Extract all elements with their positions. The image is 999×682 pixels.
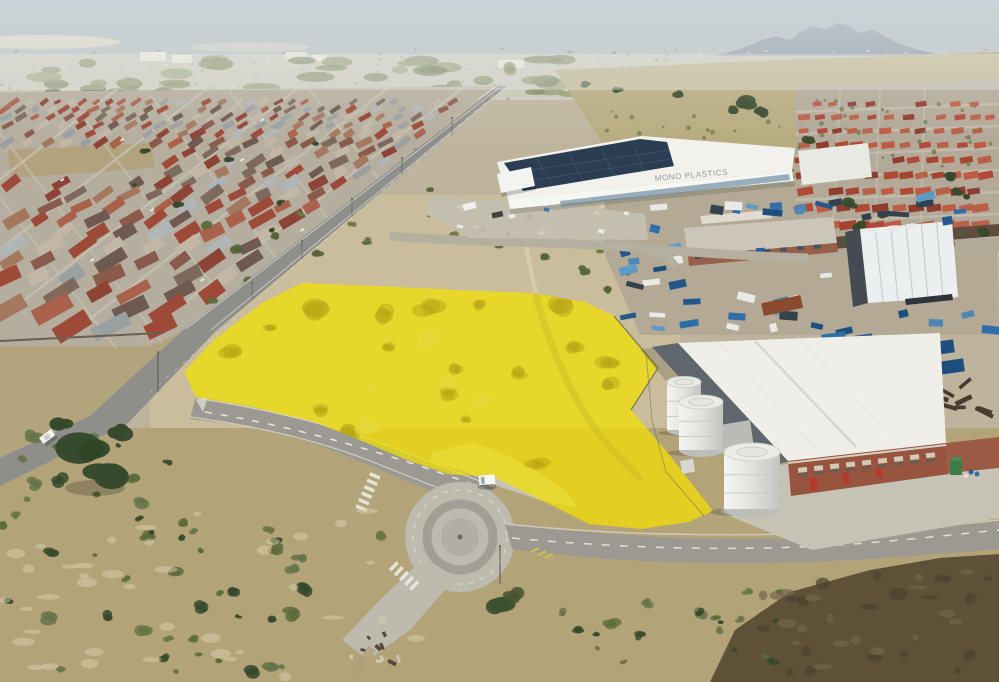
vegetation-blob <box>233 244 242 252</box>
veld-bush <box>966 162 970 166</box>
van-windshield <box>481 477 485 484</box>
vegetation-blob <box>116 445 120 448</box>
sand-patch <box>378 616 386 624</box>
plant-equipment <box>628 257 640 265</box>
tank-top-ring <box>689 398 713 406</box>
factory-window <box>878 458 887 464</box>
vegetation-blob <box>302 299 329 317</box>
sand-patch <box>279 672 291 681</box>
burnt-patch <box>851 636 860 645</box>
vegetation-blob <box>507 594 519 603</box>
sand-patch <box>201 633 221 643</box>
vegetation-blob <box>46 550 58 556</box>
vegetation-blob <box>696 611 702 616</box>
burnt-patch <box>960 569 974 574</box>
vegetation-blob <box>269 229 274 232</box>
yard-junk-item <box>508 214 515 219</box>
vegetation-blob <box>351 222 357 227</box>
burnt-patch <box>805 666 816 676</box>
vegetation-blob <box>977 227 988 233</box>
depth-haze <box>0 0 999 140</box>
vegetation-blob <box>550 300 568 313</box>
sand-patch <box>79 573 89 579</box>
yard-junk-item <box>624 211 629 215</box>
sand-patch <box>23 564 35 573</box>
vegetation-blob <box>209 298 218 303</box>
veld-bush <box>941 165 944 168</box>
vegetation-blob <box>477 394 493 403</box>
vegetation-blob <box>777 589 782 592</box>
vegetation-blob <box>601 378 612 390</box>
burnt-patch <box>805 594 821 601</box>
vegetation-blob <box>132 183 137 187</box>
burnt-patch <box>949 619 962 625</box>
vegetation-blob <box>958 231 965 237</box>
vegetation-blob <box>178 519 188 526</box>
plant-equipment <box>770 202 782 210</box>
vegetation-blob <box>31 479 39 486</box>
vegetation-blob <box>97 463 126 486</box>
burnt-patch <box>935 575 951 583</box>
tank-top-ring <box>675 379 694 385</box>
burnt-patch <box>832 640 850 647</box>
sand-patch <box>77 578 97 587</box>
plant-equipment <box>724 201 742 210</box>
vegetation-blob <box>440 391 454 402</box>
vegetation-blob <box>270 234 276 239</box>
vegetation-blob <box>150 531 154 535</box>
vegetation-blob <box>375 308 390 325</box>
burnt-patch <box>757 625 769 632</box>
vegetation-blob <box>460 417 468 422</box>
sand-patch <box>235 650 244 654</box>
burnt-patch <box>920 595 938 599</box>
vegetation-blob <box>603 287 609 292</box>
sand-patch <box>20 607 33 612</box>
sand-patch <box>154 566 178 572</box>
vegetation-blob <box>266 325 276 331</box>
vegetation-blob <box>227 157 235 161</box>
sand-patch <box>35 544 46 549</box>
vegetation-blob <box>176 202 184 207</box>
burnt-patch <box>899 649 908 658</box>
burnt-patch <box>861 604 878 610</box>
vegetation-blob <box>163 653 169 660</box>
debris-log <box>951 405 966 409</box>
vegetation-blob <box>229 347 242 356</box>
vegetation-blob <box>277 200 282 204</box>
workshop-window <box>797 246 804 250</box>
vegetation-blob <box>191 635 199 640</box>
vegetation-blob <box>14 511 21 517</box>
vegetation-blob <box>412 304 434 317</box>
sand-patch <box>193 512 202 517</box>
vegetation-blob <box>594 632 600 636</box>
vegetation-blob <box>268 616 276 622</box>
vegetation-blob <box>299 554 307 563</box>
sand-patch <box>7 549 25 559</box>
vegetation-blob <box>620 661 625 665</box>
workshop-window <box>780 247 787 251</box>
vegetation-blob <box>720 621 723 624</box>
sand-patch <box>257 545 272 554</box>
vegetation-blob <box>52 419 64 429</box>
veld-bush <box>969 141 972 144</box>
vegetation-blob <box>473 299 484 308</box>
sand-patch <box>357 508 379 513</box>
vegetation-blob <box>285 611 298 622</box>
plant-equipment <box>728 312 745 320</box>
pole-head <box>499 545 501 547</box>
vegetation-blob <box>376 531 385 538</box>
burnt-patch <box>816 578 830 590</box>
vegetation-blob <box>173 670 178 674</box>
vegetation-blob <box>167 635 172 639</box>
burnt-patch <box>873 571 881 581</box>
vegetation-blob <box>952 187 959 195</box>
sand-patch <box>293 532 308 540</box>
vegetation-blob <box>963 194 970 198</box>
sand-patch <box>24 630 41 634</box>
factory-door <box>875 468 882 479</box>
burnt-patch <box>915 574 923 581</box>
sand-patch <box>12 638 35 646</box>
vegetation-blob <box>382 344 393 350</box>
vegetation-blob <box>263 526 270 532</box>
burnt-patch <box>786 669 793 677</box>
vegetation-blob <box>23 498 29 502</box>
vegetation-blob <box>140 148 148 153</box>
rubble-debris <box>350 655 353 660</box>
factory-window <box>862 460 871 466</box>
rubble-debris <box>376 660 383 663</box>
sand-patch <box>266 538 280 545</box>
factory-window <box>926 452 935 458</box>
white-truck <box>906 223 915 229</box>
sand-patch <box>37 594 60 599</box>
vegetation-blob <box>580 269 587 276</box>
vegetation-blob <box>201 222 212 229</box>
vegetation-blob <box>313 404 329 413</box>
white-truck <box>868 228 877 233</box>
factory-window <box>814 465 823 471</box>
sand-patch <box>160 623 175 631</box>
vegetation-blob <box>136 516 142 520</box>
vegetation-blob <box>178 535 185 539</box>
burnt-patch <box>759 591 768 601</box>
vegetation-blob <box>231 588 240 597</box>
factory-window <box>894 456 903 462</box>
tank-top-ring <box>737 447 768 457</box>
vegetation-blob <box>235 615 240 618</box>
burnt-patch <box>963 650 976 661</box>
plant-equipment <box>942 216 953 226</box>
vegetation-blob <box>133 497 145 504</box>
atmospheric-haze <box>0 0 999 140</box>
pole-head <box>351 198 353 200</box>
vegetation-blob <box>299 212 304 217</box>
burnt-patch <box>797 625 808 632</box>
vegetation-blob <box>297 583 311 595</box>
vegetation-blob <box>363 241 372 245</box>
factory-window <box>830 463 839 469</box>
burnt-patch <box>954 667 961 674</box>
vegetation-blob <box>216 591 222 596</box>
burnt-patch <box>867 654 883 661</box>
vegetation-blob <box>78 449 97 461</box>
plant-equipment <box>795 205 804 215</box>
burnt-patch <box>984 575 992 581</box>
aerial-photo-stage: MONO PLASTICS <box>0 0 999 682</box>
white-drum <box>964 474 968 478</box>
pole-head <box>251 282 253 284</box>
burnt-patch <box>870 647 884 655</box>
factory-window <box>798 467 807 473</box>
vegetation-blob <box>51 476 63 484</box>
vegetation-blob <box>746 589 753 594</box>
sand-patch <box>322 616 344 620</box>
burnt-patch <box>889 588 907 600</box>
vegetation-blob <box>41 611 56 620</box>
vegetation-blob <box>710 616 719 621</box>
vegetation-blob <box>946 173 955 181</box>
sand-patch <box>124 584 136 590</box>
vegetation-blob <box>453 365 464 374</box>
vegetation-blob <box>104 614 113 621</box>
blue-drum <box>975 472 980 477</box>
veld-bush <box>797 146 800 149</box>
vegetation-blob <box>541 253 549 257</box>
burnt-patch <box>792 640 800 646</box>
vegetation-blob <box>574 626 582 632</box>
sand-patch <box>335 519 347 527</box>
burnt-patch <box>965 593 976 605</box>
vegetation-blob <box>198 653 202 656</box>
vegetation-blob <box>313 141 318 144</box>
yard-junk-item <box>458 205 464 208</box>
sand-patch <box>135 525 157 530</box>
burnt-patch <box>912 635 919 641</box>
yard-junk-item <box>473 226 478 229</box>
burnt-patch <box>802 646 810 656</box>
white-truck <box>888 225 898 231</box>
vegetation-blob <box>25 433 40 442</box>
vegetation-blob <box>167 461 172 465</box>
sand-patch <box>211 649 231 658</box>
vegetation-blob <box>199 602 208 613</box>
vegetation-blob <box>731 648 736 652</box>
sand-patch <box>42 663 59 669</box>
vegetation-blob <box>355 421 372 435</box>
vegetation-blob <box>600 357 619 369</box>
vegetation-blob <box>368 386 378 393</box>
vegetation-blob <box>426 188 433 192</box>
plant-equipment <box>877 211 891 217</box>
vegetation-blob <box>735 619 743 623</box>
sand-patch <box>289 584 299 590</box>
vegetation-blob <box>139 628 150 635</box>
sand-patch <box>85 648 104 656</box>
vegetation-blob <box>602 620 615 627</box>
vegetation-blob <box>92 554 97 557</box>
veld-bush <box>882 156 885 159</box>
pole-head <box>157 351 159 353</box>
sand-patch <box>366 560 374 564</box>
burnt-patch <box>778 619 797 628</box>
vegetation-blob <box>637 631 646 637</box>
green-tank-top <box>950 457 962 461</box>
sand-patch <box>27 665 44 671</box>
pole-head <box>401 157 403 159</box>
vegetation-blob <box>560 611 566 616</box>
green-tank <box>950 459 962 475</box>
vegetation-blob <box>511 367 524 377</box>
vegetation-blob <box>763 654 767 657</box>
vegetation-blob <box>244 665 259 675</box>
burnt-patch <box>909 585 927 589</box>
vegetation-blob <box>121 578 128 583</box>
sand-patch <box>81 659 98 669</box>
factory-door <box>809 478 817 492</box>
burnt-patch <box>939 610 955 618</box>
sand-patch <box>102 570 124 578</box>
pole-head <box>301 240 303 242</box>
sand-patch <box>144 539 154 546</box>
factory-window <box>846 461 855 467</box>
factory-window <box>910 454 919 460</box>
vegetation-blob <box>191 528 198 532</box>
sand-patch <box>223 657 238 662</box>
plant-equipment <box>683 298 701 305</box>
roundabout-dot <box>458 535 463 540</box>
veld-bush <box>931 149 936 154</box>
vegetation-blob <box>18 456 25 461</box>
sand-patch <box>107 536 116 543</box>
vegetation-blob <box>313 251 324 257</box>
vegetation-blob <box>842 197 855 207</box>
vegetation-blob <box>112 426 133 441</box>
burnt-patch <box>826 614 833 623</box>
pump-shed <box>680 459 695 474</box>
burnt-patch <box>813 664 832 670</box>
blue-drum <box>969 470 974 475</box>
vegetation-blob <box>279 665 285 669</box>
sand-patch <box>143 657 162 663</box>
vegetation-blob <box>567 342 584 352</box>
sand-patch <box>75 563 93 569</box>
plant-equipment <box>649 312 665 317</box>
vegetation-blob <box>643 602 653 609</box>
vegetation-blob <box>440 377 454 389</box>
vegetation-blob <box>268 664 279 671</box>
yard-junk-item <box>526 214 532 219</box>
vegetation-blob <box>288 565 300 572</box>
factory-door <box>842 473 849 485</box>
vegetation-blob <box>773 620 777 623</box>
aerial-photo: MONO PLASTICS <box>0 0 999 682</box>
vegetation-blob <box>420 332 435 343</box>
sand-patch <box>407 635 425 642</box>
vegetation-blob <box>716 628 723 634</box>
plant-equipment <box>929 319 943 327</box>
veld-bush <box>930 174 932 176</box>
workshop-window <box>814 244 821 248</box>
vegetation-blob <box>198 548 203 553</box>
veld-bush <box>989 142 993 146</box>
veld-bush <box>891 154 895 158</box>
vegetation-blob <box>532 458 551 468</box>
vegetation-blob <box>594 646 599 649</box>
vegetation-blob <box>216 659 221 663</box>
